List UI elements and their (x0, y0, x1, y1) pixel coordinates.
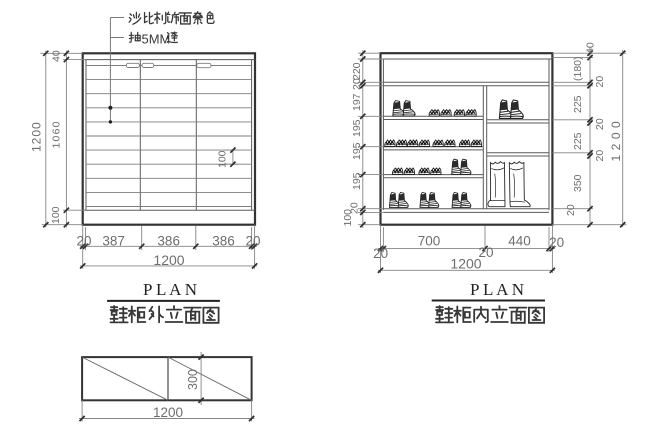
svg-text:195: 195 (351, 119, 363, 137)
svg-text:1200: 1200 (153, 252, 184, 268)
svg-text:225: 225 (572, 95, 584, 113)
svg-text:20: 20 (594, 118, 606, 130)
svg-text:1200: 1200 (30, 121, 44, 152)
svg-text:220: 220 (351, 62, 363, 80)
svg-text:440: 440 (508, 234, 531, 249)
svg-text:5MM: 5MM (142, 32, 171, 47)
svg-text:387: 387 (102, 233, 125, 248)
svg-text:20: 20 (76, 233, 91, 248)
svg-text:197: 197 (351, 93, 363, 111)
svg-text:100: 100 (217, 150, 229, 168)
svg-text:20: 20 (351, 78, 363, 90)
svg-text:20: 20 (594, 150, 606, 162)
svg-text:300: 300 (186, 369, 200, 390)
svg-text:700: 700 (418, 234, 441, 249)
svg-text:100: 100 (50, 206, 62, 224)
svg-text:40: 40 (51, 50, 63, 62)
svg-text:386: 386 (212, 233, 235, 248)
svg-text:386: 386 (157, 233, 180, 248)
svg-text:1200: 1200 (153, 405, 183, 420)
svg-text:1060: 1060 (51, 120, 63, 148)
svg-text:40: 40 (585, 42, 597, 54)
svg-text:20: 20 (565, 204, 577, 216)
svg-text:20: 20 (549, 235, 564, 250)
svg-text:195: 195 (351, 172, 363, 190)
svg-text:100: 100 (342, 209, 354, 227)
svg-text:350: 350 (572, 174, 584, 192)
svg-text:P L A N: P L A N (470, 280, 524, 299)
svg-text:1200: 1200 (609, 117, 623, 162)
svg-text:P L A N: P L A N (143, 280, 197, 299)
svg-text:(180): (180) (572, 56, 584, 81)
svg-text:225: 225 (572, 132, 584, 150)
svg-text:195: 195 (351, 142, 363, 160)
svg-text:20: 20 (245, 233, 260, 248)
svg-text:20: 20 (373, 246, 388, 261)
svg-text:1200: 1200 (450, 256, 481, 272)
svg-text:20: 20 (594, 76, 606, 88)
